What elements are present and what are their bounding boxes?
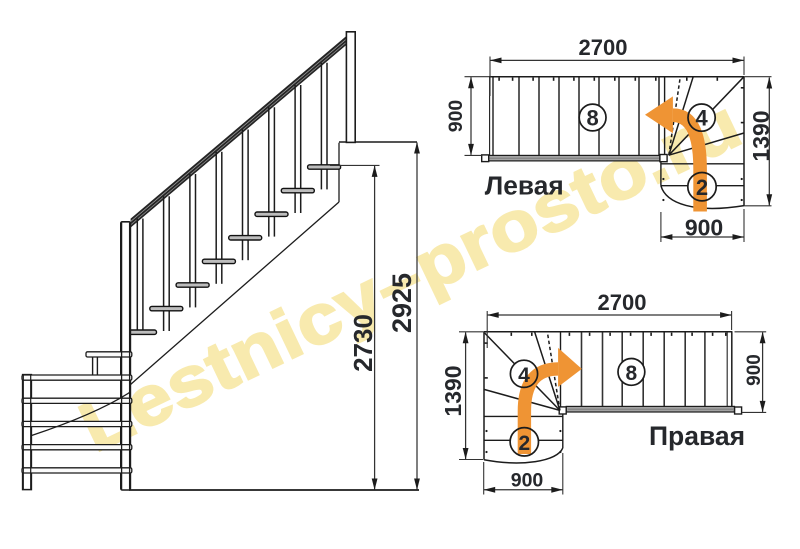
svg-text:2730: 2730 bbox=[348, 314, 378, 372]
svg-text:Правая: Правая bbox=[649, 421, 745, 451]
svg-text:900: 900 bbox=[744, 354, 765, 386]
svg-text:8: 8 bbox=[626, 362, 638, 385]
svg-text:900: 900 bbox=[511, 470, 544, 492]
svg-text:2700: 2700 bbox=[598, 290, 647, 315]
svg-text:4: 4 bbox=[695, 106, 708, 131]
svg-text:2: 2 bbox=[696, 175, 708, 200]
svg-text:8: 8 bbox=[586, 106, 598, 131]
svg-text:900: 900 bbox=[445, 100, 467, 133]
svg-text:2700: 2700 bbox=[579, 35, 628, 60]
svg-text:2925: 2925 bbox=[387, 273, 417, 333]
svg-text:4: 4 bbox=[518, 364, 530, 387]
svg-text:1390: 1390 bbox=[748, 110, 774, 161]
svg-text:2: 2 bbox=[518, 432, 530, 455]
svg-text:1390: 1390 bbox=[440, 365, 466, 416]
svg-text:900: 900 bbox=[685, 215, 723, 241]
svg-text:Левая: Левая bbox=[485, 171, 564, 201]
